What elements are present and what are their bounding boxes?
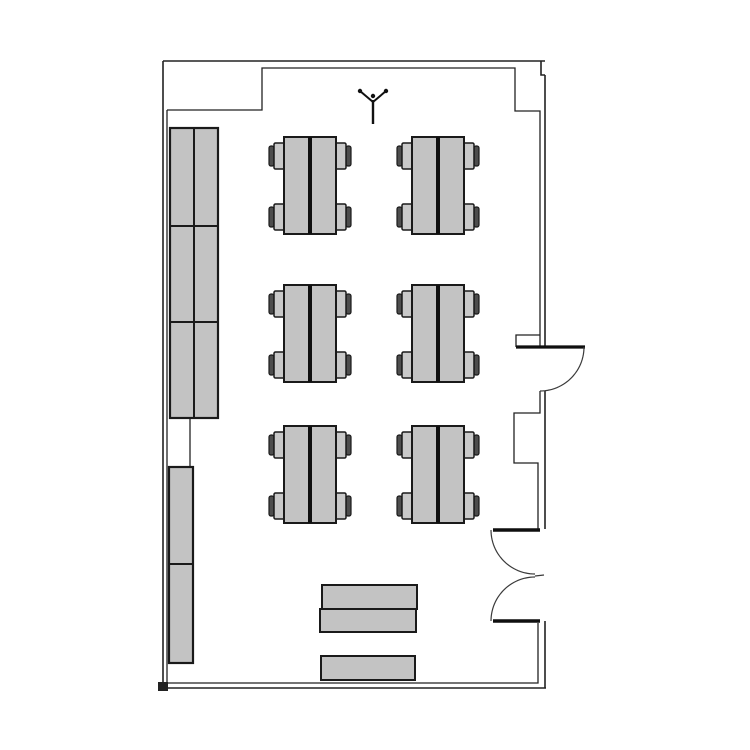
side-table [322, 585, 417, 609]
table-center-divider [308, 137, 312, 234]
wall-corner-foot [158, 682, 168, 691]
side-table [320, 609, 416, 632]
table-center-divider [436, 285, 440, 382]
fixture-dot [371, 94, 375, 98]
cabinet-run [170, 128, 218, 418]
plan-background [0, 0, 750, 750]
table-center-divider [308, 426, 312, 523]
floorplan-page [0, 0, 750, 750]
fixture-dot [358, 89, 362, 93]
table-center-divider [436, 137, 440, 234]
fixture-dot [384, 89, 388, 93]
table-center-divider [436, 426, 440, 523]
cabinet-run [169, 467, 193, 663]
floor-plan-canvas [0, 0, 750, 750]
side-tables-layer [320, 585, 417, 680]
side-table [321, 656, 415, 680]
table-center-divider [308, 285, 312, 382]
